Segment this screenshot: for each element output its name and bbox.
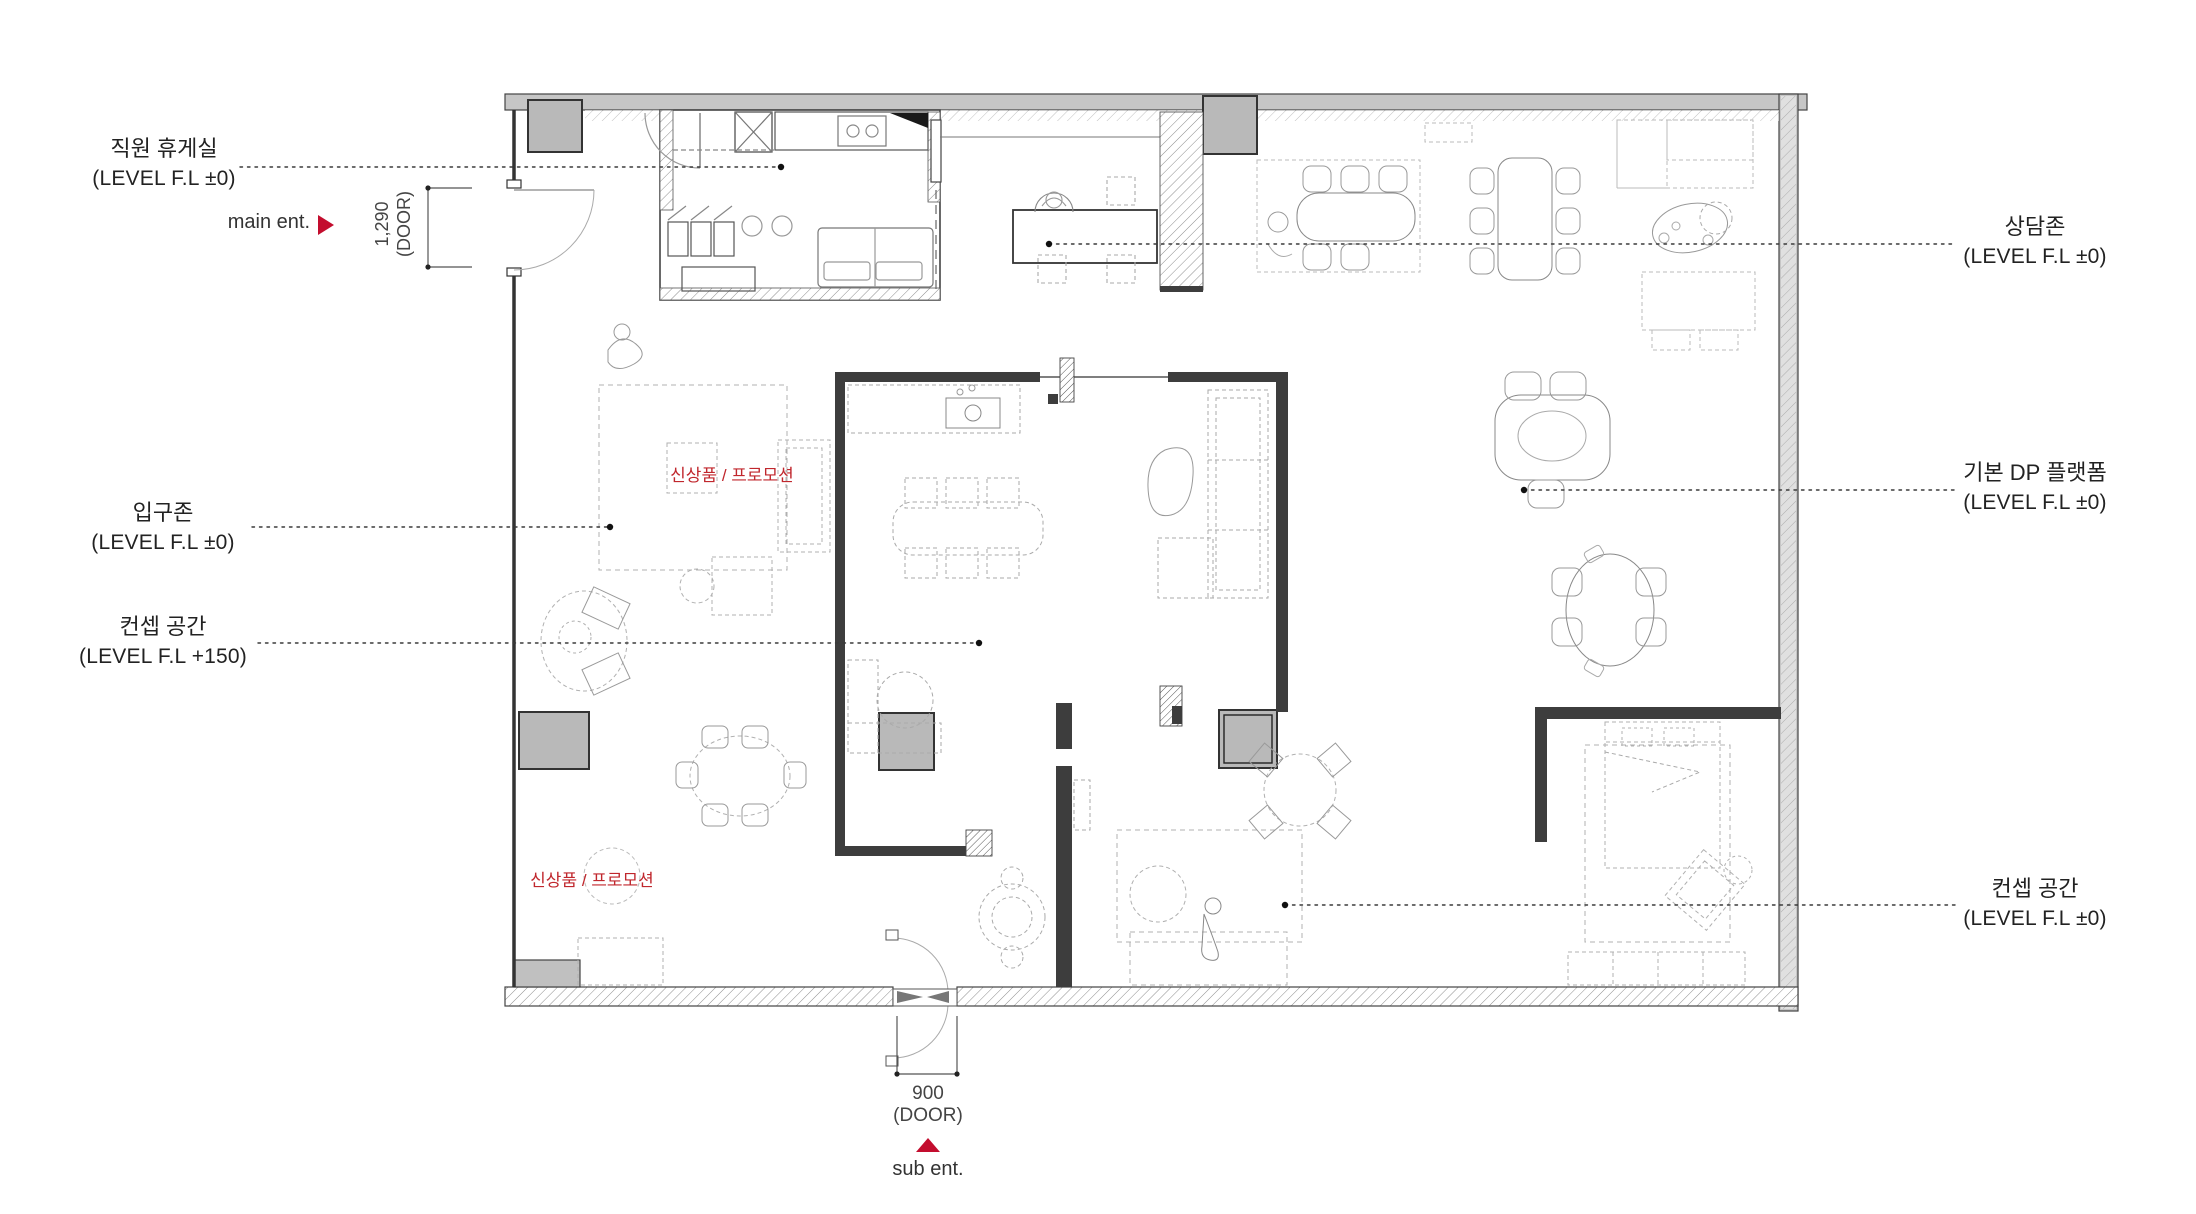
staff-room bbox=[645, 110, 941, 300]
dp-platform-area bbox=[1495, 372, 1666, 678]
label-line: (LEVEL F.L ±0) bbox=[1915, 904, 2155, 934]
label-sub-door-dimension: 900 (DOOR) bbox=[858, 1083, 998, 1127]
main-entrance-arrow-icon bbox=[318, 215, 334, 235]
dimension-value: 1,290 bbox=[371, 178, 393, 270]
dimension-value: 900 bbox=[858, 1083, 998, 1105]
label-dp-platform: 기본 DP 플랫폼 (LEVEL F.L ±0) bbox=[1915, 458, 2155, 518]
label-line: 컨셉 공간 bbox=[1915, 874, 2155, 904]
leader-lines bbox=[240, 167, 1958, 905]
dimension-unit: (DOOR) bbox=[393, 178, 415, 270]
label-sub-entrance: sub ent. bbox=[858, 1158, 998, 1181]
label-main-door-dimension: 1,290 (DOOR) bbox=[371, 178, 417, 270]
main-entrance bbox=[514, 190, 594, 270]
label-entrance-zone: 입구존 (LEVEL F.L ±0) bbox=[43, 498, 283, 558]
label-line: (LEVEL F.L ±0) bbox=[1915, 488, 2155, 518]
label-concept-space-150: 컨셉 공간 (LEVEL F.L +150) bbox=[43, 612, 283, 672]
label-concept-space-0: 컨셉 공간 (LEVEL F.L ±0) bbox=[1915, 874, 2155, 934]
floor-plan-drawing bbox=[0, 0, 2196, 1214]
label-staff-room: 직원 휴게실 (LEVEL F.L ±0) bbox=[44, 134, 284, 194]
label-line: (LEVEL F.L +150) bbox=[43, 642, 283, 672]
label-consult-zone: 상담존 (LEVEL F.L ±0) bbox=[1915, 212, 2155, 272]
promo-label-1: 신상품 / 프로모션 bbox=[652, 461, 812, 486]
label-main-entrance: main ent. bbox=[160, 211, 310, 234]
promo-label-2: 신상품 / 프로모션 bbox=[512, 866, 672, 891]
dimension-unit: (DOOR) bbox=[858, 1105, 998, 1127]
sub-entrance-arrow-icon bbox=[916, 1138, 940, 1152]
label-line: 컨셉 공간 bbox=[43, 612, 283, 642]
label-line: (LEVEL F.L ±0) bbox=[1915, 242, 2155, 272]
dining-tables bbox=[1257, 120, 1755, 350]
concept-room-walls bbox=[835, 372, 1781, 987]
dimension-lines bbox=[425, 185, 959, 1076]
label-line: (LEVEL F.L ±0) bbox=[44, 164, 284, 194]
consultation-area bbox=[940, 112, 1203, 292]
label-line: 기본 DP 플랫폼 bbox=[1915, 458, 2155, 488]
floor-plan-page: 직원 휴게실 (LEVEL F.L ±0) main ent. 1,290 (D… bbox=[0, 0, 2196, 1214]
label-line: 입구존 bbox=[43, 498, 283, 528]
concept-zone-floor bbox=[1117, 722, 1752, 985]
label-line: 상담존 bbox=[1915, 212, 2155, 242]
label-line: (LEVEL F.L ±0) bbox=[43, 528, 283, 558]
label-line: 직원 휴게실 bbox=[44, 134, 284, 164]
